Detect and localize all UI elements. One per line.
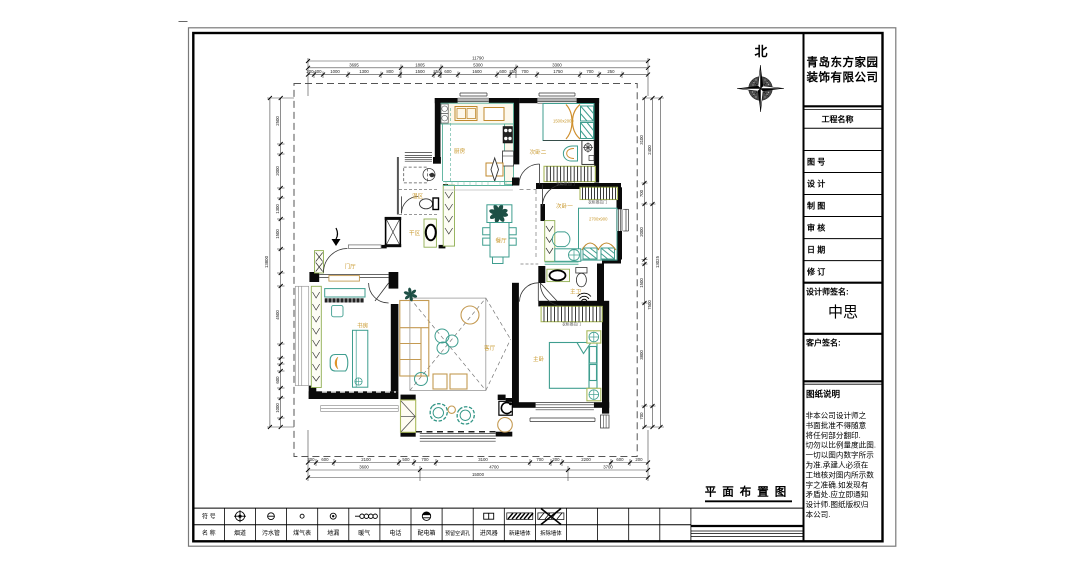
svg-text:4700: 4700 [489,465,499,470]
svg-text:青岛东方家园: 青岛东方家园 [807,55,879,69]
svg-text:门厅: 门厅 [345,263,357,271]
svg-text:煤气表: 煤气表 [293,529,311,537]
svg-text:主卫: 主卫 [570,288,582,296]
svg-text:衣柜推拉门: 衣柜推拉门 [562,322,581,327]
svg-text:厨房: 厨房 [454,147,466,155]
svg-text:13025: 13025 [655,255,660,268]
svg-text:制 图: 制 图 [807,201,825,211]
svg-text:600: 600 [444,69,452,74]
svg-text:为准.承建人必须在: 为准.承建人必须在 [806,460,869,470]
svg-text:700: 700 [639,189,644,197]
svg-text:600: 600 [275,376,280,384]
svg-text:矛盾处.应立即通知: 矛盾处.应立即通知 [806,489,869,499]
svg-text:名 称: 名 称 [202,529,216,537]
svg-text:中思: 中思 [828,304,858,321]
svg-text:地漏: 地漏 [327,529,339,537]
svg-text:装饰有限公司: 装饰有限公司 [806,70,879,84]
svg-text:1000: 1000 [330,69,340,74]
svg-text:1600: 1600 [472,69,482,74]
svg-text:拆除墙体: 拆除墙体 [540,529,562,537]
svg-text:3800: 3800 [639,350,644,360]
svg-text:15000: 15000 [472,472,485,477]
svg-text:1500: 1500 [275,229,280,239]
svg-text:2400: 2400 [647,145,652,155]
svg-text:图 号: 图 号 [807,158,825,167]
svg-text:平面布置图: 平面布置图 [705,485,793,499]
svg-text:3600: 3600 [359,465,369,470]
svg-text:700: 700 [536,457,544,462]
svg-text:200: 200 [306,69,314,74]
svg-text:600: 600 [499,69,507,74]
svg-text:1805: 1805 [415,62,425,67]
svg-text:主卧: 主卧 [533,355,545,363]
svg-text:2700x900: 2700x900 [589,217,608,222]
svg-text:日 期: 日 期 [807,245,825,255]
svg-text:600: 600 [321,457,329,462]
svg-text:衣柜推拉门: 衣柜推拉门 [556,181,575,186]
svg-text:3100: 3100 [478,457,488,462]
svg-text:2500: 2500 [275,116,280,126]
svg-text:2200: 2200 [581,457,591,462]
svg-text:设计师.图纸版权归: 设计师.图纸版权归 [806,499,869,509]
svg-text:设计师签名:: 设计师签名: [806,287,849,297]
svg-text:电话: 电话 [389,529,401,537]
svg-text:书房: 书房 [357,322,369,330]
svg-text:新建墙体: 新建墙体 [509,529,531,537]
svg-text:250: 250 [607,69,615,74]
svg-text:3700: 3700 [603,465,613,470]
svg-text:700: 700 [521,69,529,74]
svg-text:次卧一: 次卧一 [556,202,573,210]
svg-text:1750: 1750 [553,69,563,74]
svg-text:700: 700 [586,69,594,74]
svg-text:审 核: 审 核 [807,223,825,233]
svg-text:600: 600 [616,457,624,462]
svg-text:北: 北 [754,44,767,59]
svg-text:字之准确.如发现有: 字之准确.如发现有 [806,479,869,489]
svg-text:3300: 3300 [552,62,562,67]
svg-text:预留空调孔: 预留空调孔 [445,530,470,537]
svg-text:1500: 1500 [639,278,644,288]
svg-text:修 订: 修 订 [806,267,825,277]
svg-text:2000: 2000 [639,227,644,237]
svg-text:13800: 13800 [264,255,269,268]
svg-text:1300: 1300 [359,69,369,74]
svg-text:2000: 2000 [275,166,280,176]
svg-text:200: 200 [552,457,560,462]
svg-text:1500: 1500 [415,69,425,74]
svg-text:客户签名:: 客户签名: [805,338,841,348]
svg-text:干区: 干区 [409,230,421,237]
svg-text:700: 700 [421,457,429,462]
svg-text:700: 700 [639,412,644,420]
svg-text:符 号: 符 号 [202,513,216,521]
svg-text:5300: 5300 [473,62,483,67]
svg-text:500: 500 [402,457,410,462]
svg-text:1300: 1300 [275,204,280,214]
svg-text:客厅: 客厅 [484,344,496,352]
svg-text:一切以图内数字所示: 一切以图内数字所示 [806,450,875,460]
svg-text:工程名称: 工程名称 [822,114,854,124]
svg-text:衣柜推拉门: 衣柜推拉门 [588,199,607,204]
svg-text:工地核对图内所示数: 工地核对图内所示数 [806,469,875,479]
svg-text:11790: 11790 [472,56,484,61]
svg-text:2100: 2100 [361,457,371,462]
svg-text:暖气: 暖气 [358,529,370,537]
svg-text:800: 800 [386,69,394,74]
svg-text:次卧二: 次卧二 [530,148,547,156]
svg-text:污水管: 污水管 [262,529,280,537]
svg-text:进风器: 进风器 [480,529,498,537]
svg-text:设 计: 设 计 [807,179,825,189]
svg-text:200: 200 [307,457,315,462]
svg-text:1500x2000: 1500x2000 [553,119,574,124]
svg-text:4500: 4500 [275,310,280,320]
svg-text:烟道: 烟道 [234,529,246,537]
svg-text:书面批准不得随意: 书面批准不得随意 [806,420,867,430]
svg-text:3100: 3100 [639,135,644,145]
svg-text:3695: 3695 [349,62,359,67]
svg-text:7500: 7500 [647,300,652,310]
svg-text:配电箱: 配电箱 [417,529,435,537]
svg-text:切勿以比例量度此图.: 切勿以比例量度此图. [806,440,876,450]
svg-text:1000: 1000 [275,403,280,413]
svg-text:将任何部分翻印.: 将任何部分翻印. [806,430,861,440]
svg-text:湿区: 湿区 [412,192,424,200]
svg-text:图纸说明: 图纸说明 [806,389,841,399]
svg-text:本公司.: 本公司. [806,509,831,519]
svg-text:非本公司设计师之: 非本公司设计师之 [806,410,867,420]
svg-text:餐厅: 餐厅 [496,237,508,245]
svg-text:200: 200 [635,457,643,462]
